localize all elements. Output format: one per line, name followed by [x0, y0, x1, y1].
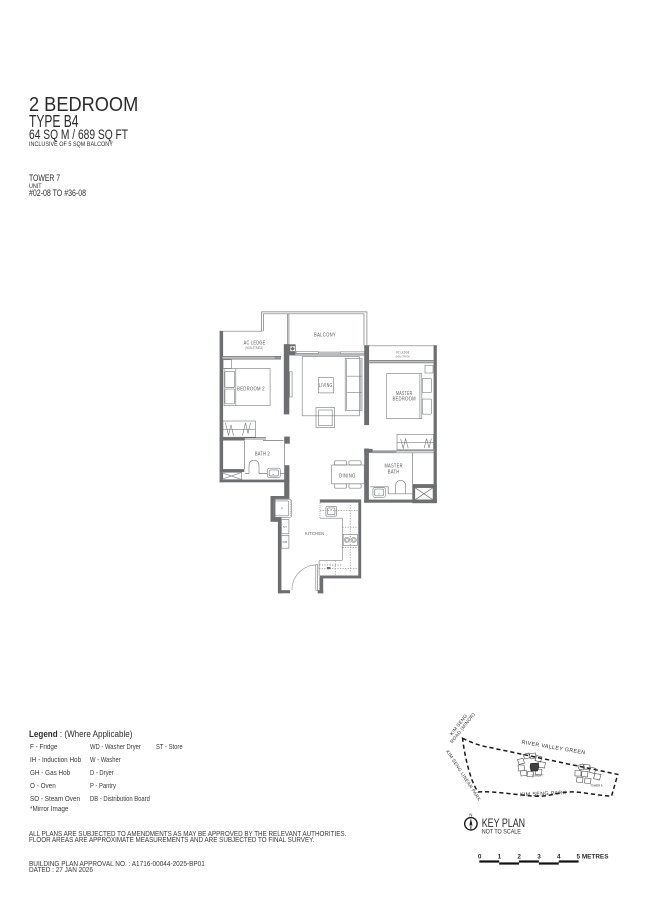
svg-text:BATH: BATH [388, 470, 400, 476]
svg-text:TOWER 7: TOWER 7 [531, 773, 544, 777]
svg-text:NOT TO SCALE: NOT TO SCALE [482, 829, 522, 836]
svg-text:BEDROOM 2: BEDROOM 2 [237, 386, 265, 392]
svg-text:BEDROOM: BEDROOM [392, 396, 416, 402]
svg-text:3: 3 [537, 854, 541, 861]
svg-text:KIM SENG PARK: KIM SENG PARK [520, 790, 567, 798]
svg-text:2: 2 [517, 854, 521, 861]
svg-text:4: 4 [557, 854, 561, 861]
svg-text:KITCHEN: KITCHEN [305, 531, 325, 537]
svg-text:BALCONY: BALCONY [314, 333, 336, 339]
svg-text:BATH 2: BATH 2 [255, 452, 270, 458]
svg-text:KIM SENG LINEAR PARK: KIM SENG LINEAR PARK [445, 749, 482, 802]
svg-text:RC LEDGE: RC LEDGE [396, 350, 410, 354]
svg-text:DB: DB [283, 540, 288, 544]
svg-text:ST: ST [283, 525, 288, 529]
svg-text:0: 0 [478, 854, 482, 861]
svg-text:TOWER 8: TOWER 8 [590, 783, 603, 787]
svg-text:LIVING: LIVING [319, 383, 333, 389]
svg-text:5 METRES: 5 METRES [577, 854, 610, 861]
svg-text:1: 1 [498, 854, 502, 861]
svg-text:(NON-STRATA): (NON-STRATA) [245, 346, 263, 350]
svg-text:DINING: DINING [339, 473, 356, 479]
svg-text:N: N [469, 813, 472, 818]
svg-text:(NON-STRATA): (NON-STRATA) [396, 355, 410, 359]
svg-text:RIVER VALLEY GREEN: RIVER VALLEY GREEN [521, 740, 586, 757]
svg-text:F: F [281, 507, 283, 511]
